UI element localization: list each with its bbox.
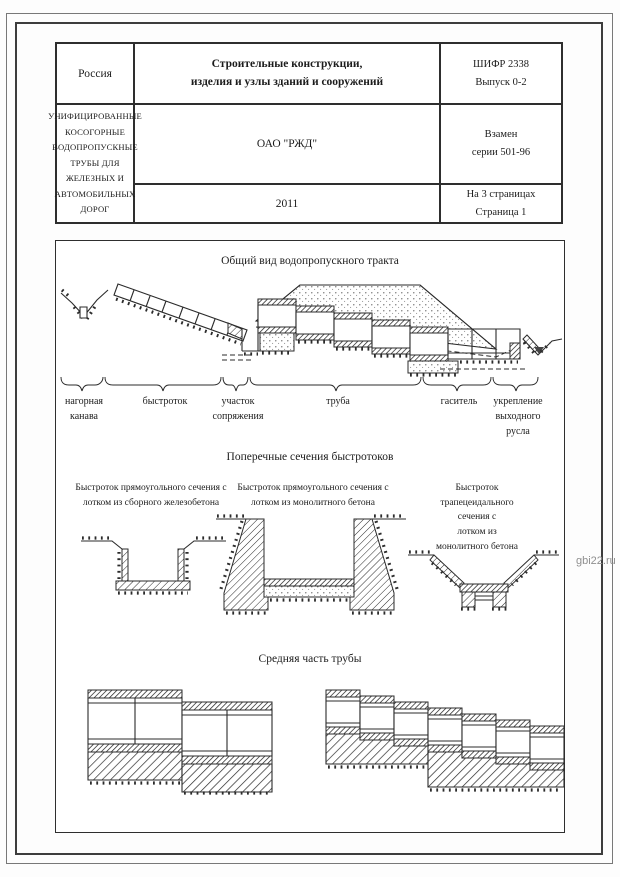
general-view-drawing <box>58 279 564 394</box>
terrain-and-canal <box>61 290 108 319</box>
cross-section-trapezoid-drawing <box>406 539 561 619</box>
zone-label-transition: участок сопряжения <box>213 394 264 424</box>
cell-organization: ОАО "РЖД" <box>135 105 441 185</box>
zone-label-chute: быстроток <box>143 394 188 409</box>
site-watermark: gbi22.ru <box>576 555 616 567</box>
caption-monolithic-rect-chute: Быстроток прямоугольного сечения с лотко… <box>237 481 388 510</box>
long-segment-1 <box>88 690 182 783</box>
zone-label-pipe: труба <box>326 394 350 409</box>
zone-label-outlet: укрепление выходного русла <box>493 394 542 439</box>
transition-section <box>222 323 260 360</box>
middle-part-title: Средняя часть трубы <box>56 653 564 665</box>
caption-precast-rect-chute: Быстроток прямоугольного сечения с лотко… <box>75 481 226 510</box>
cell-pages: На 3 страницах Страница 1 <box>441 185 561 222</box>
cell-country: Россия <box>57 44 135 105</box>
pipe-middle-long-sections-drawing <box>86 685 291 795</box>
chute <box>114 284 247 344</box>
cell-document-title: УНИФИЦИРОВАННЫЕ КОСОГОРНЫЕ ВОДОПРОПУСКНЫ… <box>57 105 135 222</box>
zone-label-dissipator: гаситель <box>441 394 478 409</box>
zone-braces <box>61 377 538 391</box>
long-segment-2 <box>182 702 272 793</box>
zone-label-upland-ditch: нагорная канава <box>65 394 103 424</box>
document-sheet: Россия Строительные конструкции, изделия… <box>0 0 620 877</box>
cell-replaces: Взамен серии 501-96 <box>441 105 561 185</box>
cell-code: ШИФР 2338 Выпуск 0-2 <box>441 44 561 105</box>
general-view-title: Общий вид водопропускного тракта <box>56 255 564 267</box>
header-table: Россия Строительные конструкции, изделия… <box>55 42 563 224</box>
outlet-channel <box>523 335 562 355</box>
cell-subject: Строительные конструкции, изделия и узлы… <box>135 44 441 105</box>
cross-section-precast-drawing <box>76 525 231 610</box>
cross-sections-title: Поперечные сечения быстротоков <box>56 451 564 463</box>
cross-section-monolithic-drawing <box>214 513 409 633</box>
pipe-middle-short-sections-drawing <box>324 687 564 797</box>
cell-year: 2011 <box>135 185 441 222</box>
drawings-frame: Общий вид водопропускного тракта <box>55 240 565 833</box>
